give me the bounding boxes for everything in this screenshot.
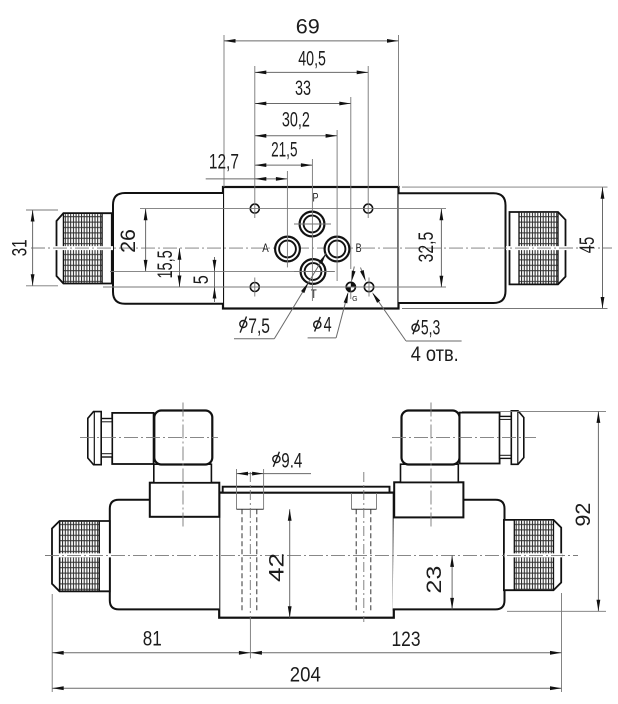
svg-text:5,3: 5,3: [421, 316, 440, 339]
svg-text:7,5: 7,5: [248, 315, 270, 338]
svg-text:9.4: 9.4: [281, 449, 302, 472]
svg-text:69: 69: [296, 16, 320, 39]
svg-text:12,7: 12,7: [209, 151, 239, 174]
svg-text:21,5: 21,5: [271, 138, 297, 161]
svg-text:30,2: 30,2: [282, 109, 310, 132]
svg-text:81: 81: [143, 627, 162, 650]
svg-text:4: 4: [324, 314, 332, 337]
svg-text:204: 204: [290, 664, 321, 687]
svg-text:23: 23: [423, 566, 446, 594]
svg-text:B: B: [356, 241, 362, 255]
svg-text:P: P: [313, 191, 319, 205]
svg-text:40,5: 40,5: [298, 47, 326, 70]
svg-text:A: A: [262, 241, 269, 255]
svg-text:92: 92: [572, 503, 595, 527]
svg-text:33: 33: [295, 77, 311, 100]
svg-text:26: 26: [117, 229, 140, 253]
svg-text:15,5: 15,5: [154, 250, 177, 278]
svg-text:5: 5: [190, 275, 213, 284]
svg-text:T: T: [311, 287, 318, 301]
svg-text:32,5: 32,5: [415, 232, 438, 263]
svg-text:G: G: [352, 296, 357, 303]
svg-text:4 отв.: 4 отв.: [411, 343, 459, 366]
svg-text:31: 31: [9, 239, 32, 256]
svg-text:42: 42: [266, 553, 289, 582]
svg-text:45: 45: [576, 237, 599, 254]
svg-text:123: 123: [392, 628, 421, 651]
